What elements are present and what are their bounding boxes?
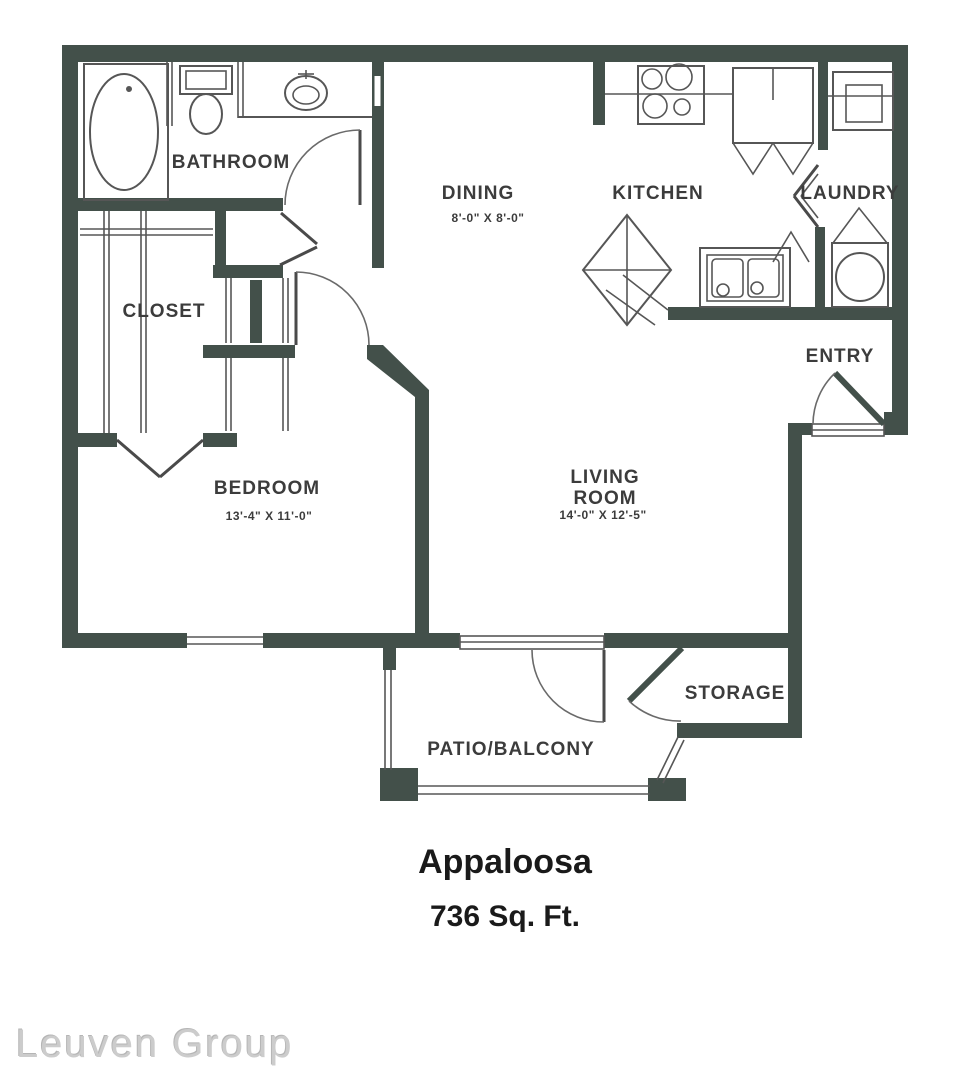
dryer-icon [828,72,893,130]
bathroom-sink [238,62,372,118]
wall-storage-south [677,723,802,738]
patio-sliding-door [460,636,604,722]
toilet [167,62,232,134]
room-label-kitchen: KITCHEN [612,183,703,204]
wall-patio-corner-right [648,778,686,801]
refrigerator-icon [733,68,813,174]
room-label-laundry: LAUNDRY [800,183,899,204]
wall-bedroom-north [203,345,295,358]
room-dims-dining: 8'-0" X 8'-0" [452,211,525,225]
room-label-storage: STORAGE [685,683,786,704]
wall-bedroom-south-right [263,633,430,648]
room-dims-living: 14'-0" X 12'-5" [559,508,646,522]
wall-dining-kitchen-stub [593,58,605,125]
wall-utility-closet-top [213,265,283,278]
wall-right [892,45,908,413]
kitchen-sink [700,232,809,307]
hall-door [280,213,317,265]
bathtub [84,64,168,200]
bathroom-door [285,130,360,205]
wall-patio-corner-left [380,768,418,801]
washer-icon [832,208,888,307]
entry-door [812,373,884,436]
closet-rod-shelves [80,211,213,433]
wall-recess [375,76,381,106]
bedroom-door [296,272,369,345]
wall-storage-top [680,633,802,648]
wall-kitchen-south [668,307,897,320]
wall-left [62,45,78,648]
closet-bifold-door [117,440,203,477]
floor-plan-canvas: BATHROOM CLOSET DINING 8'-0" X 8'-0" KIT… [0,0,964,1080]
watermark: Leuven Group [16,1022,294,1067]
wall-patio-west-stub [383,648,396,670]
plan-title: Appaloosa [418,843,593,881]
room-label-bathroom: BATHROOM [172,152,290,173]
room-label-entry: ENTRY [806,346,875,367]
wall-entry-jamb [884,412,908,435]
bedroom-window [187,637,263,644]
wall-top [62,45,908,62]
room-dims-bedroom: 13'-4" X 11'-0" [226,509,313,523]
storage-door [629,648,682,721]
room-label-dining: DINING [442,183,515,204]
wall-hall-stub [215,208,226,268]
wall-closet-south-right [203,433,237,447]
wall-bedroom-east-angled [367,345,429,648]
plan-area: 736 Sq. Ft. [430,900,580,933]
room-label-patio: PATIO/BALCONY [427,739,594,760]
wall-fridge-laundry-stub [818,58,828,150]
kitchen-counter [605,94,733,325]
room-label-bedroom: BEDROOM [214,478,320,499]
wall-closet-south-left [62,433,117,447]
wall-laundry-mid-stub [815,227,825,307]
room-label-living-line1: LIVING [570,467,639,488]
room-label-closet: CLOSET [122,301,205,322]
kitchen-island [583,215,671,325]
room-label-living-line2: ROOM [573,488,636,509]
wall-utility-closet-divider [250,280,262,343]
wall-living-east [788,423,802,648]
wall-living-south-right [604,633,682,648]
wall-bedroom-south-left [62,633,187,648]
wall-living-south-left [430,633,460,648]
